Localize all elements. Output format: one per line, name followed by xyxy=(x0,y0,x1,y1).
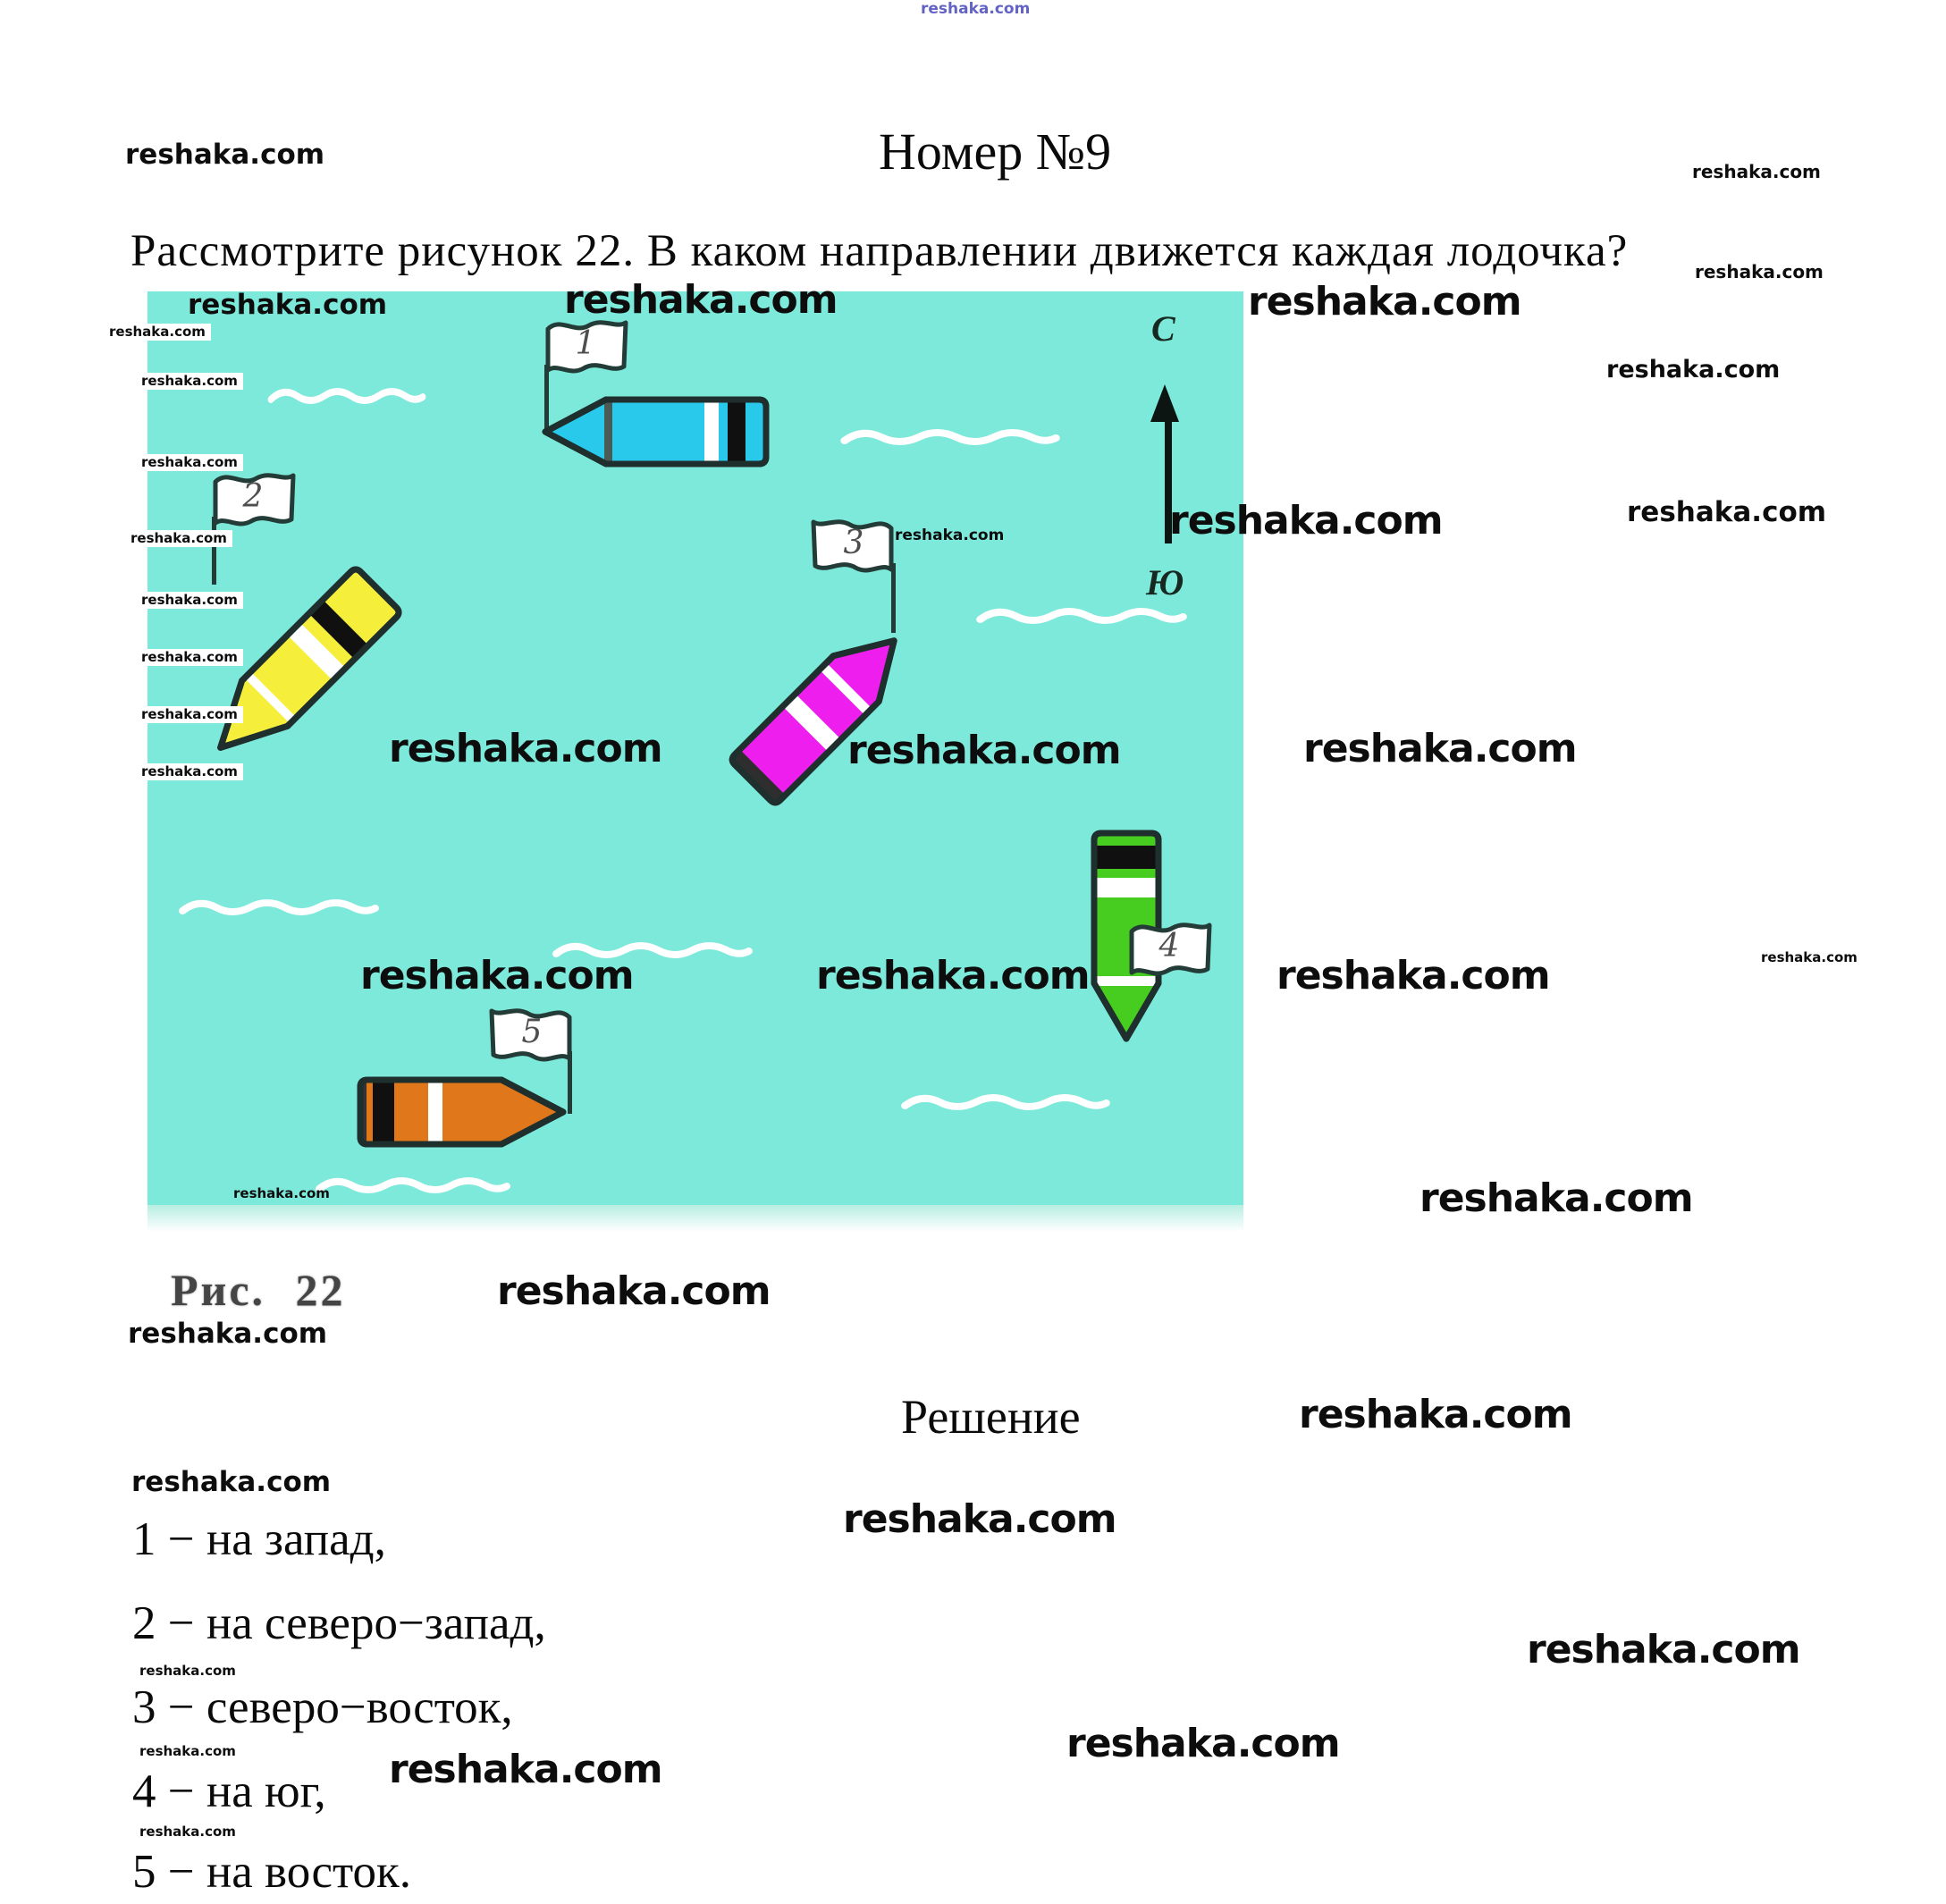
watermark: reshaka.com xyxy=(1627,499,1826,527)
boat-5 xyxy=(351,1071,570,1153)
watermark: reshaka.com xyxy=(136,592,243,609)
watermark: reshaka.com xyxy=(131,1469,331,1496)
watermark: reshaka.com xyxy=(389,729,662,769)
wave-icon xyxy=(266,383,427,408)
wave-icon xyxy=(177,894,381,919)
watermark: reshaka.com xyxy=(104,324,211,341)
watermark: reshaka.com xyxy=(136,706,243,723)
compass-north-arrow-icon xyxy=(1150,384,1179,422)
boat-1 xyxy=(536,391,773,473)
answer-line-3: 3 − северо−восток, xyxy=(132,1681,513,1734)
watermark: reshaka.com xyxy=(1606,358,1780,382)
watermark: reshaka.com xyxy=(1695,263,1824,281)
watermark: reshaka.com xyxy=(139,1664,236,1678)
watermark: reshaka.com xyxy=(497,1272,771,1311)
solution-heading: Решение xyxy=(901,1389,1081,1445)
compass-south-label: Ю xyxy=(1146,561,1184,603)
watermark: reshaka.com xyxy=(1761,951,1858,965)
watermark: reshaka.com xyxy=(136,763,243,780)
compass-north-label: С xyxy=(1151,308,1175,350)
flag-4-number: 4 xyxy=(1147,928,1192,965)
watermark: reshaka.com xyxy=(360,956,634,996)
watermark: reshaka.com xyxy=(843,1500,1116,1539)
watermark: reshaka.com xyxy=(1276,956,1550,996)
flag-5-number: 5 xyxy=(510,1014,554,1050)
page: С Ю xyxy=(0,0,1946,1904)
watermark: reshaka.com xyxy=(136,649,243,666)
flag-1-number: 1 xyxy=(563,325,608,362)
watermark: reshaka.com xyxy=(136,454,243,471)
flag-2-number: 2 xyxy=(231,478,275,515)
watermark: reshaka.com xyxy=(125,141,324,169)
watermark: reshaka.com xyxy=(1299,1395,1572,1435)
wave-icon xyxy=(899,1089,1112,1114)
question-text: Рассмотрите рисунок 22. В каком направле… xyxy=(131,225,1628,277)
watermark: reshaka.com xyxy=(921,2,1030,17)
watermark: reshaka.com xyxy=(139,1745,236,1758)
watermark: reshaka.com xyxy=(233,1187,330,1201)
figure-caption: Рис. 22 xyxy=(171,1264,346,1316)
answer-line-4: 4 − на юг, xyxy=(132,1765,326,1818)
watermark: reshaka.com xyxy=(1248,282,1521,322)
watermark: reshaka.com xyxy=(1419,1179,1693,1218)
watermark: reshaka.com xyxy=(1169,501,1443,541)
watermark: reshaka.com xyxy=(847,731,1121,771)
watermark: reshaka.com xyxy=(1692,163,1821,181)
watermark: reshaka.com xyxy=(139,1825,236,1839)
watermark: reshaka.com xyxy=(895,528,1004,543)
watermark: reshaka.com xyxy=(136,373,243,390)
watermark: reshaka.com xyxy=(389,1750,662,1790)
watermark: reshaka.com xyxy=(128,1320,327,1348)
wave-icon xyxy=(974,602,1189,628)
watermark: reshaka.com xyxy=(564,281,838,320)
answer-line-1: 1 − на запад, xyxy=(132,1512,386,1566)
watermark: reshaka.com xyxy=(1066,1724,1340,1764)
watermark: reshaka.com xyxy=(816,956,1090,996)
answer-line-2: 2 − на северо−запад, xyxy=(132,1596,546,1650)
wave-icon xyxy=(838,424,1062,449)
watermark: reshaka.com xyxy=(125,530,232,547)
watermark: reshaka.com xyxy=(188,291,387,319)
watermark: reshaka.com xyxy=(1303,729,1577,769)
watermark: reshaka.com xyxy=(1527,1630,1800,1670)
flag-3-number: 3 xyxy=(831,525,876,561)
page-title: Номер №9 xyxy=(879,122,1111,181)
wave-icon xyxy=(314,1172,512,1197)
answer-line-5: 5 − на восток. xyxy=(132,1845,411,1899)
figure-bottom-fade xyxy=(147,1205,1243,1232)
